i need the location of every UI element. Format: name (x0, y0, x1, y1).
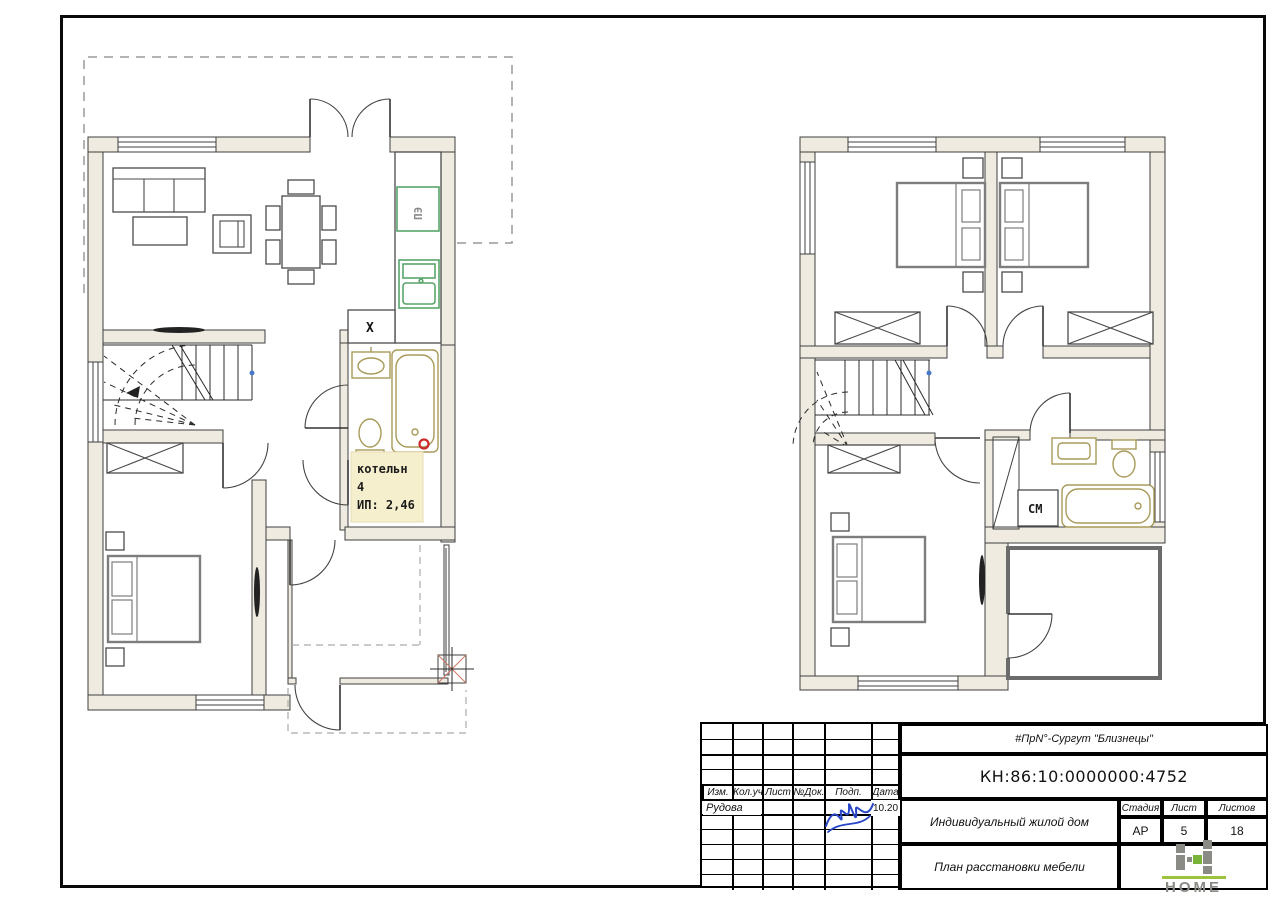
tb-cadastral-number: КН:86:10:0000000:4752 (900, 754, 1268, 799)
nightstand (831, 628, 849, 646)
boiler-label-3: ИП: 2,46 (357, 498, 415, 512)
tv-bedroom (979, 555, 985, 605)
stair-node-dot (927, 371, 932, 376)
sink (352, 347, 390, 378)
tv-living (153, 327, 205, 333)
stove-label: ПЭ (412, 207, 425, 220)
tb-row-line (702, 844, 900, 845)
boiler-label-2: 4 (357, 480, 364, 494)
bedroom-first-floor (106, 443, 260, 666)
tb-row-line (702, 754, 900, 756)
nightstand (106, 648, 124, 666)
tb-col-list: Лист (762, 784, 794, 801)
signature (820, 792, 878, 838)
home-logo-mark (1174, 840, 1214, 874)
sink (1052, 438, 1096, 464)
balcony (1008, 548, 1160, 678)
tb-logo-cell: HOME (1119, 844, 1268, 890)
dining-table (282, 196, 320, 268)
bathtub (1062, 485, 1154, 527)
nightstand (963, 158, 983, 178)
home-logo-text: HOME (1165, 880, 1222, 895)
coffee-table (133, 217, 187, 245)
entry-double-door (310, 99, 390, 137)
second-floor-plan: СМ (793, 137, 1165, 690)
first-floor-plan: ПЭ X (84, 57, 512, 733)
boiler-room: котельн 4 ИП: 2,46 (351, 452, 423, 522)
tb-row-line (702, 769, 900, 770)
tb-col-izm: Изм. (702, 784, 734, 801)
tb-author: Рудова (703, 801, 761, 815)
kitchen: ПЭ X (348, 152, 441, 343)
stair-node-dot (250, 371, 255, 376)
tb-drawing-name: План расстановки мебели (900, 844, 1119, 890)
living-room-furniture (113, 168, 336, 333)
tb-row-line (702, 739, 900, 740)
tb-project-name: #ПрN°-Сургут "Близнецы" (900, 724, 1268, 754)
bedroom-2f-right (1000, 158, 1153, 344)
boiler-label-1: котельн (357, 462, 408, 476)
tb-object-name: Индивидуальный жилой дом (900, 799, 1119, 844)
nightstand (1002, 272, 1022, 292)
bathroom-second-floor: СМ (993, 437, 1154, 529)
bedroom-2f-left (835, 158, 985, 344)
tb-row-line (702, 859, 900, 860)
tb-sheet-label: Лист (1162, 799, 1206, 817)
tb-col-koluch: Кол.уч (732, 784, 764, 801)
nightstand (106, 532, 124, 550)
nightstand (963, 272, 983, 292)
second-floor-doors (935, 306, 1070, 483)
kitchen-sink (399, 260, 439, 308)
sofa (113, 168, 205, 212)
tb-grid-line (792, 724, 794, 890)
nightstand (831, 513, 849, 531)
tb-grid-line (762, 724, 764, 890)
nightstand (1002, 158, 1022, 178)
toilet (1112, 440, 1136, 477)
title-block: Изм. Кол.уч Лист №Док. Подп. Дата Рудова… (700, 722, 1266, 888)
first-floor-doors (223, 385, 348, 730)
bathroom-first-floor (352, 347, 438, 459)
hood-label: X (366, 321, 374, 336)
tb-row-line (702, 874, 900, 875)
tv-bedroom (254, 567, 260, 617)
home-logo: HOME (1162, 840, 1226, 895)
drawing-sheet: ПЭ X (0, 0, 1280, 905)
tb-stage-value: АР (1119, 817, 1162, 844)
tb-sheets-label: Листов (1206, 799, 1268, 817)
tb-stage-label: Стадия (1119, 799, 1162, 817)
bathtub (392, 350, 438, 452)
washer-label: СМ (1028, 502, 1042, 516)
bedroom-2f-bottom (831, 513, 985, 646)
stairs-first-floor (103, 345, 255, 425)
kitchen-counter (395, 152, 441, 343)
